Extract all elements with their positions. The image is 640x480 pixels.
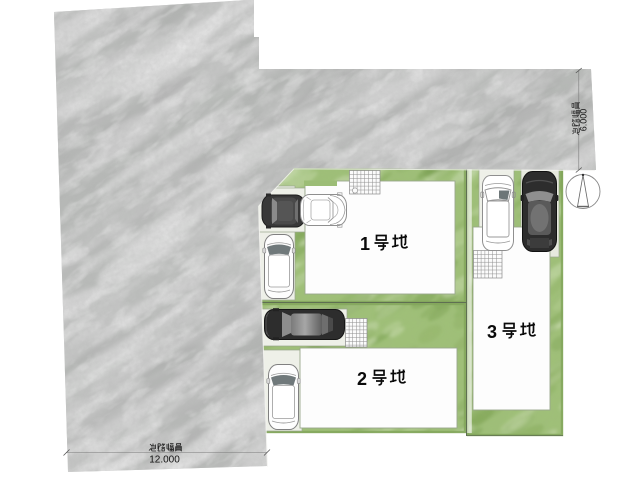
svg-text:1: 1 [360,234,370,254]
svg-text:12.000: 12.000 [149,455,180,466]
svg-text:3: 3 [487,322,497,342]
svg-text:2: 2 [357,369,367,389]
svg-text:6.000: 6.000 [579,109,589,132]
